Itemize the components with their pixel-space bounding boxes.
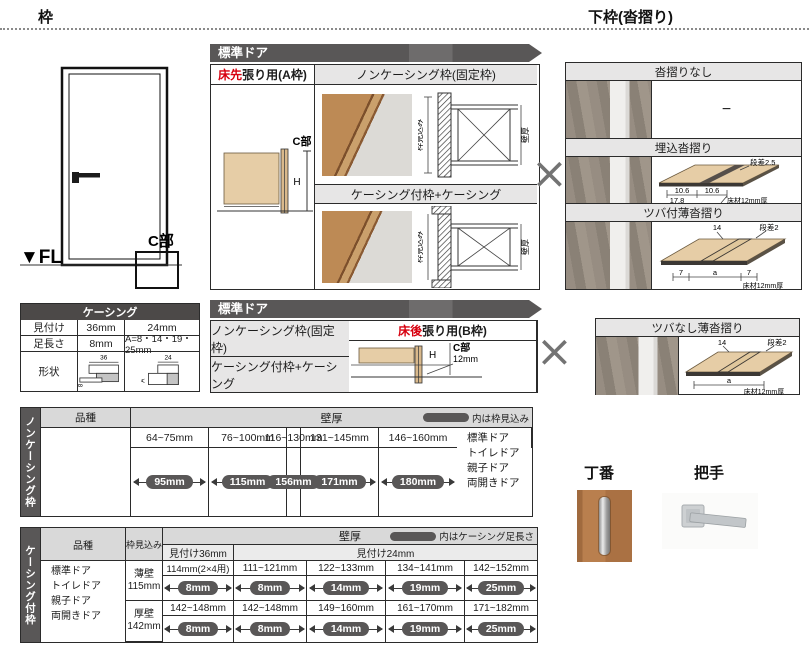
t2-r1-val-3: 19mm — [386, 576, 465, 601]
mitsuke-36-header: 見付け36mm — [163, 545, 234, 561]
dim-36: 36 — [100, 355, 108, 362]
product-item: 標準ドア — [467, 431, 521, 446]
t2-r2-val-1: 8mm — [234, 616, 307, 642]
arrow-right-icon — [299, 625, 305, 633]
height-label: H — [429, 350, 436, 361]
dimension-span: 8mm — [164, 621, 231, 637]
hinge-photo — [577, 490, 632, 562]
t2-r2-range-2: 149~160mm — [307, 601, 386, 616]
dim-a: A — [141, 378, 147, 383]
type-rest-part: 張り用(A枠) — [242, 66, 307, 83]
t2-r1-range-4: 142~152mm — [465, 561, 537, 576]
product-item: 両開きドア — [467, 476, 521, 491]
door-corner-photo — [322, 211, 412, 283]
door-corner-photo — [322, 94, 412, 176]
dimension-span: 14mm — [309, 580, 384, 596]
dim-10-6-left: 10.6 — [674, 186, 689, 195]
arrow-right-icon — [226, 625, 232, 633]
product-item: 標準ドア — [51, 564, 115, 579]
dimension-span: 8mm — [235, 621, 304, 637]
t2-r1-val-0: 8mm — [163, 576, 234, 601]
step-label: 段差2.5 — [750, 157, 775, 167]
noncasing-content: 枠見込み 壁厚 — [315, 85, 537, 185]
frame-member — [438, 214, 451, 280]
floor-edge — [661, 261, 747, 265]
wall-thickness-header: 壁厚 内は枠見込み — [131, 408, 532, 428]
value-171-cell: 171mm — [301, 448, 379, 516]
range-gap-column — [41, 428, 131, 516]
flanged-thin-sill-header: ツバ付薄沓摺り — [566, 204, 801, 222]
dim-7-left: 7 — [678, 268, 682, 277]
dimension-span: 25mm — [466, 580, 535, 596]
casing-piece — [432, 206, 451, 214]
wall-depth: 142mm — [127, 621, 160, 633]
arrow-left-icon — [388, 584, 394, 592]
door-handle-lever — [76, 173, 100, 178]
arrow-left-icon — [235, 584, 241, 592]
product-header: 品種 — [41, 528, 126, 561]
frame-member — [438, 93, 451, 177]
keijo-label: 形状 — [21, 352, 78, 391]
arrow-right-icon — [530, 625, 536, 633]
note-text: 内は枠見込み — [472, 411, 529, 425]
arrow-left-icon — [309, 584, 315, 592]
casing-frame-option: ケーシング付枠+ケーシング — [211, 357, 349, 392]
t2-r1-range-3: 134~141mm — [386, 561, 465, 576]
banner-standard-door-b: 標準ドア — [210, 300, 542, 318]
arrow-right-icon — [200, 478, 206, 486]
wall-thickness-header: 壁厚 内はケーシング足長さ — [163, 528, 537, 545]
frame-type-b-table: 床後張り用(B枠) ノンケーシング枠(固定枠) ケーシング付枠+ケーシング H … — [210, 320, 538, 393]
dim-a: a — [727, 376, 732, 385]
dimension-span: 8mm — [164, 580, 231, 596]
t2-r2-range-1: 142~148mm — [234, 601, 307, 616]
b-frame-options: ノンケーシング枠(固定枠) ケーシング付枠+ケーシング — [211, 321, 349, 392]
floor-edge — [686, 372, 760, 376]
banner-standard-door-a: 標準ドア — [210, 44, 542, 62]
multiply-sign: × — [536, 330, 573, 374]
dim-10-6-right: 10.6 — [704, 186, 719, 195]
door-elevation-diagram: ▼FL C部 — [20, 60, 210, 295]
leader-line — [427, 364, 453, 374]
height-label: H — [293, 177, 300, 188]
dim-14: 14 — [712, 223, 720, 232]
t2-r1-val-1: 8mm — [234, 576, 307, 601]
casing-leg-badge: 8mm — [250, 581, 291, 595]
flangeless-thin-sill-table: ツバなし薄沓摺り 14 段差2 a 床材12mm厚 — [595, 318, 800, 395]
frame-depth-badge: 180mm — [392, 475, 444, 489]
arrow-left-icon — [164, 625, 170, 633]
c-part-label: C部 — [293, 134, 312, 148]
table-side-label-casing: ケーシング付枠 — [21, 528, 41, 642]
sill-none-header: 沓摺りなし — [566, 63, 801, 81]
casing-profile-part — [158, 365, 179, 373]
product-item: 両開きドア — [51, 609, 115, 624]
page-title-bottom-frame: 下枠(沓摺り) — [588, 6, 673, 27]
side-label-text: ノンケーシング枠 — [23, 416, 38, 508]
page-title-frame: 枠 — [38, 6, 53, 27]
b-frame-section-diagram-cell: H C部 12mm — [349, 341, 537, 392]
casing-spec-table: ケーシング 見付け 36mm 24mm 足長さ 8mm A=8・14・19・25… — [20, 303, 200, 392]
arrow-left-icon — [388, 625, 394, 633]
t2-r1-range-0: 114mm(2×4用) — [163, 561, 234, 576]
wall-thickness-label: 壁厚 — [520, 127, 530, 143]
frame-depth-label: 枠見込み — [418, 119, 424, 151]
value-180-cell: 180mm — [379, 448, 457, 516]
gap-dim-label: 12mm — [453, 354, 478, 364]
type-red-part: 床先 — [218, 66, 242, 83]
arrow-left-icon — [164, 584, 170, 592]
frame-type-a-table: 床先張り用(A枠) ノンケーシング枠(固定枠) C部 H — [210, 64, 540, 290]
wall-thickness-label: 壁厚 — [520, 239, 530, 255]
t2-r1-val-4: 25mm — [465, 576, 537, 601]
t2-r2-val-0: 8mm — [163, 616, 234, 642]
casing-section-diagram: 枠見込み 壁厚 — [418, 206, 530, 288]
sill-options-table: 沓摺りなし − 埋込沓摺り 段差2.5 10.6 — [565, 62, 802, 290]
casing-frame-size-table: ケーシング付枠 品種 枠見込み 壁厚 内はケーシング足長さ 見付け36mm 見付… — [20, 527, 538, 643]
value-95-cell: 95mm — [131, 448, 209, 516]
product-item: トイレドア — [51, 579, 115, 594]
floor-edge — [659, 183, 743, 187]
multiply-sign: × — [531, 152, 568, 196]
leader-line — [717, 232, 723, 239]
banner-label: 標準ドア — [218, 302, 268, 316]
dim-24: 24 — [164, 354, 172, 361]
t2-r1-range-2: 122~133mm — [307, 561, 386, 576]
casing-leg-badge: 19mm — [402, 622, 448, 636]
dimension-span: 8mm — [235, 580, 304, 596]
ashinagasa-36: 8mm — [78, 336, 125, 352]
arrow-right-icon — [226, 584, 232, 592]
arrow-right-icon — [449, 478, 455, 486]
floor-thickness-label: 床材12mm厚 — [742, 281, 782, 289]
hinge-pin — [599, 497, 610, 555]
floor-first-type-header: 床先張り用(A枠) — [211, 65, 315, 85]
hinge-label: 丁番 — [584, 462, 614, 483]
casing-leg-badge: 19mm — [402, 581, 448, 595]
floor-thickness-label: 床材12mm厚 — [727, 196, 767, 204]
thick-wall-header: 厚壁142mm — [126, 601, 163, 642]
casing-leg-badge: 25mm — [478, 622, 524, 636]
leader-line — [756, 231, 766, 238]
dim-14: 14 — [718, 338, 726, 347]
arrow-left-icon — [235, 625, 241, 633]
casing-shape-24-cell: 24 A — [125, 352, 199, 391]
casing-piece — [432, 280, 451, 288]
t2-r2-val-3: 19mm — [386, 616, 465, 642]
dim-7-right: 7 — [746, 268, 750, 277]
casing-leg-badge: 8mm — [250, 622, 291, 636]
casing-leg-badge: 8mm — [178, 622, 219, 636]
product-list: 標準ドア トイレドア 親子ドア 両開きドア — [41, 561, 126, 642]
t2-r1-val-2: 14mm — [307, 576, 386, 601]
banner-label: 標準ドア — [218, 46, 268, 60]
range-116-130: 116~130mm — [287, 428, 301, 448]
thin-wall-header: 薄壁115mm — [126, 561, 163, 601]
floor-thickness-label: 床材12mm厚 — [744, 387, 784, 395]
arrow-left-icon — [133, 478, 139, 486]
note-casing-leg: 内はケーシング足長さ — [390, 529, 534, 543]
casing-profile-foot — [80, 378, 102, 382]
t2-r2-val-4: 25mm — [465, 616, 537, 642]
dim-a: a — [712, 268, 717, 277]
range-131-145: 131~145mm — [301, 428, 379, 448]
door-leaf-section — [359, 348, 414, 363]
badge-sample-pill — [423, 413, 469, 422]
frame-depth-badge: 171mm — [313, 475, 365, 489]
wall-thickness-title: 壁厚 — [339, 528, 361, 544]
arrow-right-icon — [299, 584, 305, 592]
a-frame-section-diagram: C部 H — [211, 85, 315, 291]
casing-profile-36-diagram: 36 8 — [78, 353, 124, 390]
arrow-left-icon — [466, 584, 472, 592]
product-item: 親子ドア — [51, 594, 115, 609]
embedded-sill-diagram-cell: 段差2.5 10.6 10.6 17.8 床材12mm厚 — [652, 157, 801, 203]
dimension-span: 25mm — [466, 621, 535, 637]
side-label-text: ケーシング付枠 — [23, 545, 38, 626]
arrow-right-icon — [456, 584, 462, 592]
product-header: 品種 — [41, 408, 131, 428]
flangeless-sill-diagram: 14 段差2 a 床材12mm厚 — [680, 338, 798, 395]
dim-8: 8 — [79, 383, 85, 387]
flangeless-thin-sill-row: 14 段差2 a 床材12mm厚 — [596, 337, 799, 395]
range-64-75: 64~75mm — [131, 428, 209, 448]
casing-shape-36-cell: 36 8 — [78, 352, 125, 391]
dimension-span: 19mm — [388, 621, 463, 637]
noncasing-frame-size-table: ノンケーシング枠 品種 壁厚 内は枠見込み 64~75mm 76~100mm 1… — [20, 407, 533, 517]
sill-none-row: − — [566, 81, 801, 139]
t2-r2-range-4: 171~182mm — [465, 601, 537, 616]
mitsuke-36: 36mm — [78, 320, 125, 336]
floor-photo — [566, 81, 652, 138]
handle-photo — [662, 493, 758, 549]
badge-sample-pill — [390, 532, 436, 541]
casing-content: 枠見込み 壁厚 — [315, 204, 537, 289]
casing-title: ケーシング — [21, 304, 199, 320]
arrow-left-icon — [381, 478, 387, 486]
flanged-sill-diagram: 14 段差2 7 a 7 床材12mm厚 — [653, 223, 801, 289]
table-side-label-noncasing: ノンケーシング枠 — [21, 408, 41, 516]
embedded-sill-diagram: 段差2.5 10.6 10.6 17.8 床材12mm厚 — [653, 157, 801, 204]
type-rest-part: 張り用(B枠) — [422, 322, 487, 339]
casing-frame-header: ケーシング付枠+ケーシング — [315, 185, 537, 204]
floor-level-label: ▼FL — [20, 247, 62, 268]
mitsuke-24-header: 見付け24mm — [234, 545, 537, 561]
noncasing-section-diagram: 枠見込み 壁厚 — [418, 89, 530, 181]
ashinagasa-24: A=8・14・19・25mm — [125, 336, 199, 352]
value-156-cell: 156mm — [287, 448, 301, 516]
frame-depth-label: 枠見込み — [418, 231, 424, 263]
dimension-span: 156mm — [287, 474, 299, 490]
wall-type: 厚壁 — [127, 609, 160, 621]
c-part-label: C部 — [453, 341, 470, 354]
mitsuke-label: 見付け — [21, 320, 78, 336]
arrow-right-icon — [377, 625, 383, 633]
noncasing-frame-header: ノンケーシング枠(固定枠) — [315, 65, 537, 85]
dimension-span: 180mm — [381, 474, 456, 490]
frame-depth-badge: 115mm — [222, 475, 274, 489]
arrow-right-icon — [370, 478, 376, 486]
catalog-page: 枠 下枠(沓摺り) ▼FL C部 標準ドア 床先張り用(A枠) ノンケーシング枠… — [0, 0, 809, 649]
wall-thickness-title: 壁厚 — [321, 410, 343, 426]
t2-r2-val-2: 14mm — [307, 616, 386, 642]
b-frame-section-diagram: H C部 12mm — [349, 341, 485, 392]
product-item: 親子ドア — [467, 461, 521, 476]
step-label: 段差2 — [767, 338, 786, 347]
casing-leg-badge: 8mm — [178, 581, 219, 595]
a-frame-section-diagram-cell: C部 H — [211, 85, 315, 289]
note-frame-depth: 内は枠見込み — [423, 411, 529, 425]
casing-leg-badge: 14mm — [323, 622, 369, 636]
casing-profile-part — [89, 365, 118, 373]
flangeless-sill-diagram-cell: 14 段差2 a 床材12mm厚 — [679, 337, 799, 395]
dim-17-8: 17.8 — [669, 196, 684, 204]
t2-r2-range-0: 142~148mm — [163, 601, 234, 616]
dimension-span: 19mm — [388, 580, 463, 596]
c-part-label: C部 — [148, 232, 174, 250]
frame-depth-badge: 95mm — [146, 475, 192, 489]
flangeless-thin-sill-header: ツバなし薄沓摺り — [596, 319, 799, 337]
dimension-span: 14mm — [309, 621, 384, 637]
note-text: 内はケーシング足長さ — [439, 529, 534, 543]
product-item: トイレドア — [467, 446, 521, 461]
divider — [0, 28, 809, 30]
flanged-sill-diagram-cell: 14 段差2 7 a 7 床材12mm厚 — [652, 222, 801, 289]
step-label: 段差2 — [759, 223, 778, 232]
arrow-right-icon — [456, 625, 462, 633]
dimension-span: 95mm — [133, 474, 207, 490]
arrow-left-icon — [211, 478, 217, 486]
door-leaf-section — [224, 153, 279, 204]
flanged-thin-sill-row: 14 段差2 7 a 7 床材12mm厚 — [566, 222, 801, 289]
floor-after-type-header: 床後張り用(B枠) — [349, 321, 537, 341]
no-sill-dash: − — [652, 81, 801, 138]
embedded-sill-header: 埋込沓摺り — [566, 139, 801, 157]
type-red-part: 床後 — [398, 322, 422, 339]
casing-leg-badge: 25mm — [478, 581, 524, 595]
noncasing-frame-option: ノンケーシング枠(固定枠) — [211, 321, 349, 357]
arrow-right-icon — [377, 584, 383, 592]
arrow-left-icon — [466, 625, 472, 633]
t2-r1-range-1: 111~121mm — [234, 561, 307, 576]
frame-depth-badge: 156mm — [267, 475, 319, 489]
ashinagasa-label: 足長さ — [21, 336, 78, 352]
casing-profile-24-diagram: 24 A — [141, 353, 183, 390]
embedded-sill-row: 段差2.5 10.6 10.6 17.8 床材12mm厚 — [566, 157, 801, 204]
t2-r2-range-3: 161~170mm — [386, 601, 465, 616]
floor-photo — [596, 337, 679, 395]
arrow-right-icon — [530, 584, 536, 592]
casing-profile-part — [167, 373, 178, 384]
wall-depth: 115mm — [128, 581, 161, 593]
wall-type: 薄壁 — [128, 569, 161, 581]
door-panel — [69, 74, 160, 259]
handle-label: 把手 — [694, 462, 724, 483]
arrow-left-icon — [309, 625, 315, 633]
range-146-160: 146~160mm — [379, 428, 457, 448]
frame-depth-header: 枠見込み — [126, 528, 163, 561]
product-list: 標準ドア トイレドア 親子ドア 両開きドア — [457, 428, 532, 448]
lever-handle-drawing — [662, 493, 758, 549]
casing-leg-badge: 14mm — [323, 581, 369, 595]
floor-photo — [566, 157, 652, 203]
floor-photo — [566, 222, 652, 289]
